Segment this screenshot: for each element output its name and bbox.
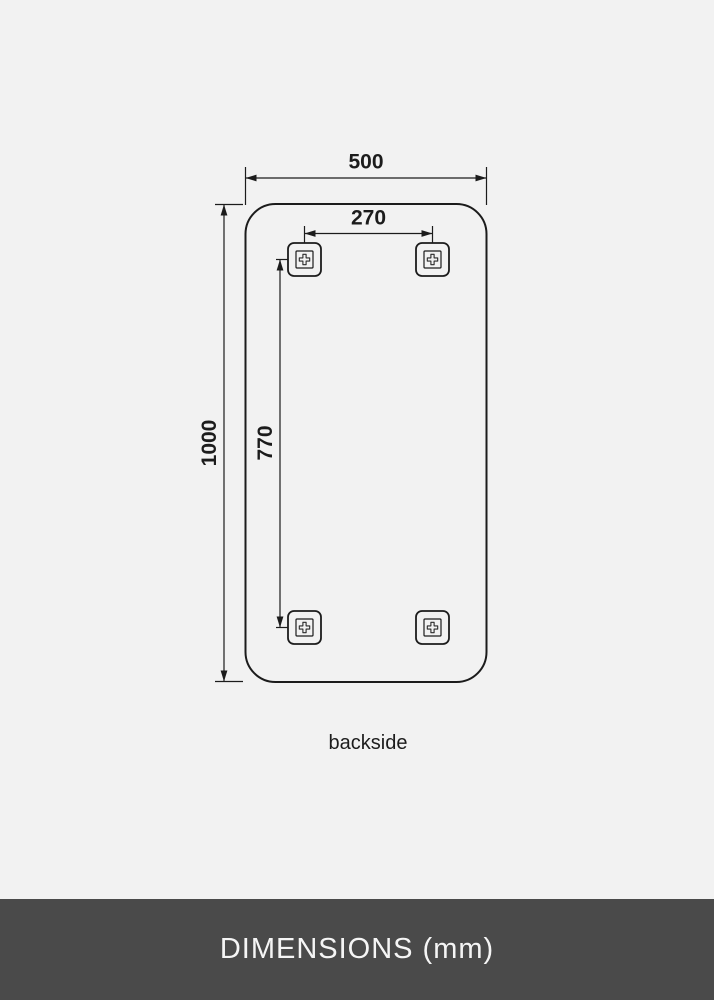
dimension-label-hole-spacing-horizontal: 270 [351,207,386,230]
mirror-body-outline [246,204,487,682]
dimension-hole-spacing-horizontal: 270 [305,207,433,244]
footer-bar: DIMENSIONS (mm) [0,899,714,1000]
footer-title: DIMENSIONS (mm) [220,933,494,966]
mounting-bracket-bottom-left [288,611,321,644]
mounting-bracket-top-left [288,243,321,276]
technical-drawing: 500 1000 270 770 [0,0,714,899]
dimension-width: 500 [246,151,487,206]
mounting-bracket-bottom-right [416,611,449,644]
dimension-hole-spacing-vertical: 770 [254,260,288,628]
dimension-label-width: 500 [348,151,383,174]
view-caption: backside [329,732,408,754]
dimension-label-height: 1000 [198,420,221,467]
dimension-label-hole-spacing-vertical: 770 [254,425,277,460]
mounting-bracket-top-right [416,243,449,276]
product-dimension-figure: 500 1000 270 770 [0,0,714,1000]
dimension-height: 1000 [198,205,243,682]
